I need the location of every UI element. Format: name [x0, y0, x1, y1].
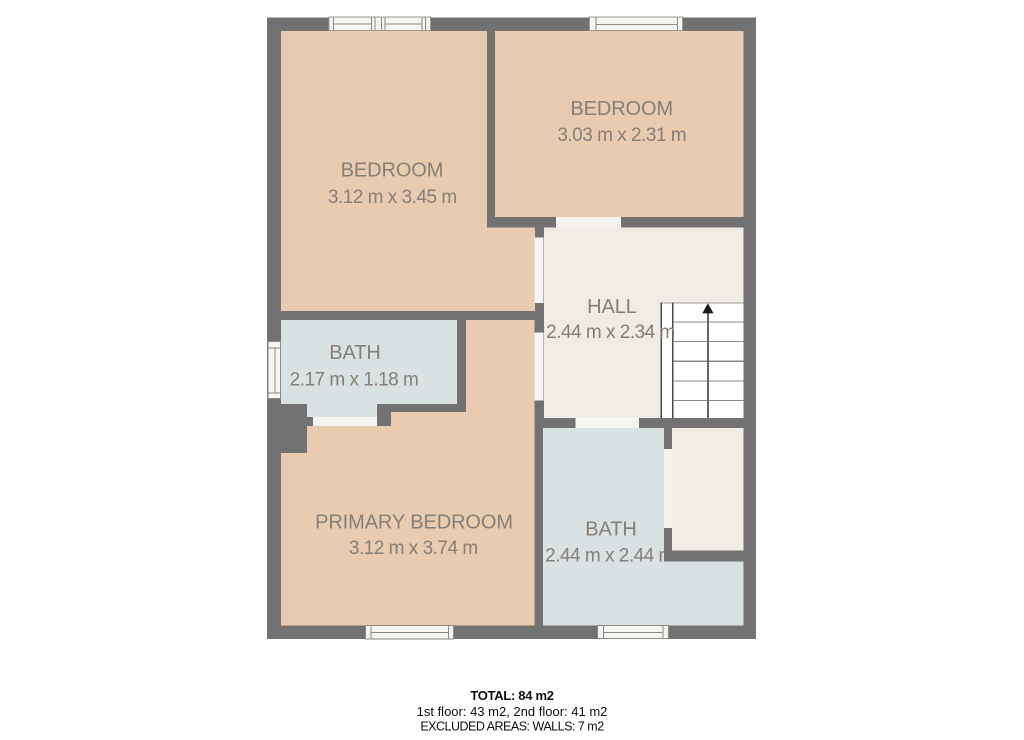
svg-text:BATH: BATH [329, 342, 380, 364]
svg-text:2.44 m x 2.44 m: 2.44 m x 2.44 m [545, 545, 674, 566]
svg-text:2.44 m x 2.34 m: 2.44 m x 2.34 m [546, 322, 675, 343]
svg-text:TOTAL: 84 m2: TOTAL: 84 m2 [470, 688, 553, 703]
svg-text:PRIMARY BEDROOM: PRIMARY BEDROOM [315, 512, 513, 534]
svg-text:3.03 m x 2.31 m: 3.03 m x 2.31 m [557, 125, 686, 146]
svg-text:BATH: BATH [585, 519, 636, 541]
svg-text:BEDROOM: BEDROOM [341, 160, 444, 182]
svg-text:HALL: HALL [587, 296, 637, 318]
svg-text:2.17 m x 1.18 m: 2.17 m x 1.18 m [290, 370, 419, 391]
svg-text:EXCLUDED AREAS: WALLS: 7 m2: EXCLUDED AREAS: WALLS: 7 m2 [420, 720, 604, 734]
svg-text:1st floor: 43 m2, 2nd floor: 4: 1st floor: 43 m2, 2nd floor: 41 m2 [417, 704, 608, 719]
svg-text:BEDROOM: BEDROOM [570, 98, 673, 120]
svg-text:3.12 m x 3.45 m: 3.12 m x 3.45 m [328, 187, 457, 208]
svg-text:3.12 m x 3.74 m: 3.12 m x 3.74 m [349, 538, 478, 559]
